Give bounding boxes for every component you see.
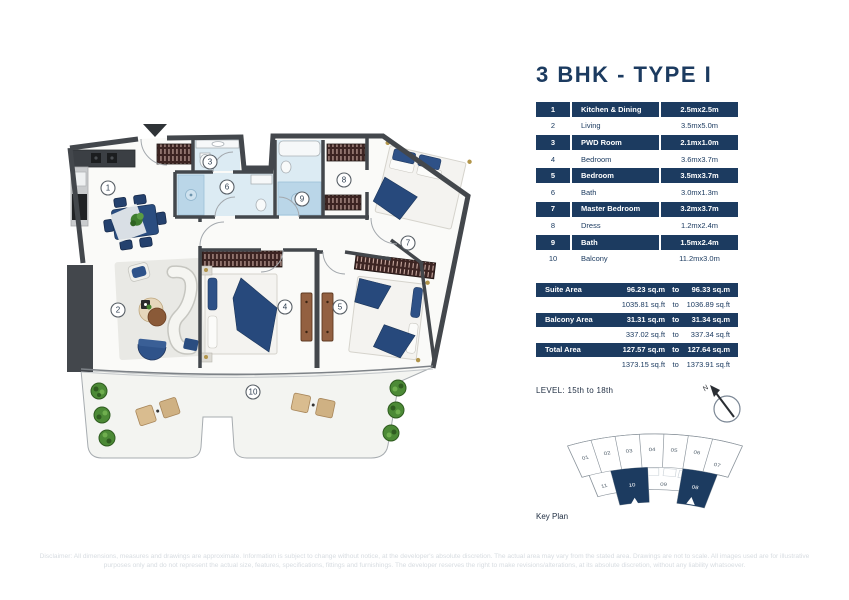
room-dimensions: 3.6mx3.7m — [661, 152, 738, 167]
entry-arrow-icon — [143, 124, 167, 137]
room-label-number: 3 — [208, 158, 213, 167]
area-sqm-from: 127.57 sq.m — [616, 346, 665, 354]
key-plan-unit-number: 05 — [670, 448, 677, 454]
room-number: 4 — [536, 152, 570, 167]
rooms-table: 1Kitchen & Dining2.5mx2.5m2Living3.5mx5.… — [536, 102, 738, 266]
floorplan-page: 12345678910 3 BHK - TYPE I 1Kitchen & Di… — [0, 0, 849, 600]
room-number: 9 — [536, 235, 570, 250]
room-dimensions: 3.5mx5.0m — [661, 119, 738, 134]
room-dimensions: 3.2mx3.7m — [661, 202, 738, 217]
key-plan-unit-number: 09 — [660, 482, 667, 487]
area-to-word: to — [665, 286, 686, 294]
area-to-word: to — [665, 316, 686, 324]
room-name: Bath — [572, 235, 659, 250]
info-panel: 3 BHK - TYPE I 1Kitchen & Dining2.5mx2.5… — [536, 62, 738, 395]
key-plan-unit-number: 03 — [625, 449, 633, 455]
room-number: 5 — [536, 168, 570, 183]
room-dimensions: 2.5mx2.5m — [661, 102, 738, 117]
area-to-word: to — [665, 361, 686, 369]
room-row: 8Dress1.2mx2.4m — [536, 218, 738, 233]
area-sqft-from: 337.02 sq.ft — [616, 331, 665, 339]
room-dimensions: 11.2mx3.0m — [661, 251, 738, 266]
room-name: Master Bedroom — [572, 202, 659, 217]
room-row: 5Bedroom3.5mx3.7m — [536, 168, 738, 183]
area-sqft-from: 1373.15 sq.ft — [616, 361, 665, 369]
room-number: 3 — [536, 135, 570, 150]
area-sqft-from: 1035.81 sq.ft — [616, 301, 665, 309]
room-name: Bedroom — [572, 152, 659, 167]
balcony-floor — [81, 367, 433, 458]
room-dimensions: 3.5mx3.7m — [661, 168, 738, 183]
room-dimensions: 3.0mx1.3m — [661, 185, 738, 200]
area-sqft-to: 337.34 sq.ft — [686, 331, 738, 339]
area-to-word: to — [665, 331, 686, 339]
room-row: 2Living3.5mx5.0m — [536, 119, 738, 134]
disclaimer-text: Disclaimer: All dimensions, measures and… — [40, 552, 810, 570]
area-row-sqm: Suite Area96.23 sq.mto96.33 sq.m — [536, 283, 738, 297]
room-label-number: 7 — [406, 239, 411, 248]
area-to-word: to — [665, 346, 686, 354]
room-label-number: 8 — [342, 176, 347, 185]
room-row: 4Bedroom3.6mx3.7m — [536, 152, 738, 167]
key-plan-unit-number: 08 — [691, 485, 699, 491]
room-dimensions: 1.5mx2.4m — [661, 235, 738, 250]
room-row: 7Master Bedroom3.2mx3.7m — [536, 202, 738, 217]
room-label-number: 5 — [338, 303, 343, 312]
disclaimer: Disclaimer: All dimensions, measures and… — [0, 552, 849, 570]
area-row-sqm: Total Area127.57 sq.mto127.64 sq.m — [536, 343, 738, 357]
room-label-number: 4 — [283, 303, 288, 312]
room-label-number: 1 — [106, 184, 111, 193]
room-row: 10Balcony11.2mx3.0m — [536, 251, 738, 266]
room-label-number: 9 — [300, 195, 305, 204]
room-dimensions: 1.2mx2.4m — [661, 218, 738, 233]
room-number: 6 — [536, 185, 570, 200]
room-row: 6Bath3.0mx1.3m — [536, 185, 738, 200]
key-plan-unit-number: 10 — [628, 483, 636, 489]
room-row: 1Kitchen & Dining2.5mx2.5m — [536, 102, 738, 117]
area-sqm-to: 96.33 sq.m — [686, 286, 738, 294]
room-label-number: 2 — [116, 306, 121, 315]
room-row: 3PWD Room2.1mx1.0m — [536, 135, 738, 150]
room-dimensions: 2.1mx1.0m — [661, 135, 738, 150]
area-sqm-to: 31.34 sq.m — [686, 316, 738, 324]
room-name: Living — [572, 119, 659, 134]
key-plan-label: Key Plan — [536, 512, 568, 521]
room-name: Balcony — [572, 251, 659, 266]
areas-table: Suite Area96.23 sq.mto96.33 sq.m1035.81 … — [536, 283, 738, 372]
room-label-number: 10 — [249, 388, 258, 397]
area-row-sqft: 1035.81 sq.ftto1036.89 sq.ft — [536, 298, 738, 312]
room-number: 10 — [536, 251, 570, 266]
area-to-word: to — [665, 301, 686, 309]
area-label: Total Area — [536, 346, 616, 354]
area-sqft-to: 1036.89 sq.ft — [686, 301, 738, 309]
room-name: PWD Room — [572, 135, 659, 150]
room-name: Bath — [572, 185, 659, 200]
key-plan-unit-number: 06 — [693, 450, 701, 456]
area-sqm-from: 96.23 sq.m — [616, 286, 665, 294]
key-plan-unit-number: 04 — [649, 447, 656, 452]
room-row: 9Bath1.5mx2.4m — [536, 235, 738, 250]
compass-north-label: N — [702, 384, 711, 393]
key-plan-outline — [568, 434, 743, 508]
floor-plan-drawing: 12345678910 — [55, 120, 500, 475]
page-title: 3 BHK - TYPE I — [536, 62, 738, 88]
area-label: Balcony Area — [536, 316, 616, 324]
compass-icon: N — [700, 380, 752, 432]
room-number: 2 — [536, 119, 570, 134]
area-row-sqm: Balcony Area31.31 sq.mto31.34 sq.m — [536, 313, 738, 327]
area-sqm-from: 31.31 sq.m — [616, 316, 665, 324]
area-label: Suite Area — [536, 286, 616, 294]
room-number: 7 — [536, 202, 570, 217]
room-label-number: 6 — [225, 183, 230, 192]
area-row-sqft: 337.02 sq.ftto337.34 sq.ft — [536, 328, 738, 342]
room-name: Dress — [572, 218, 659, 233]
room-number: 8 — [536, 218, 570, 233]
area-row-sqft: 1373.15 sq.ftto1373.91 sq.ft — [536, 358, 738, 372]
room-name: Kitchen & Dining — [572, 102, 659, 117]
area-sqft-to: 1373.91 sq.ft — [686, 361, 738, 369]
room-number: 1 — [536, 102, 570, 117]
key-plan-diagram: 0102030405060711100908 — [565, 428, 745, 514]
area-sqm-to: 127.64 sq.m — [686, 346, 738, 354]
room-name: Bedroom — [572, 168, 659, 183]
